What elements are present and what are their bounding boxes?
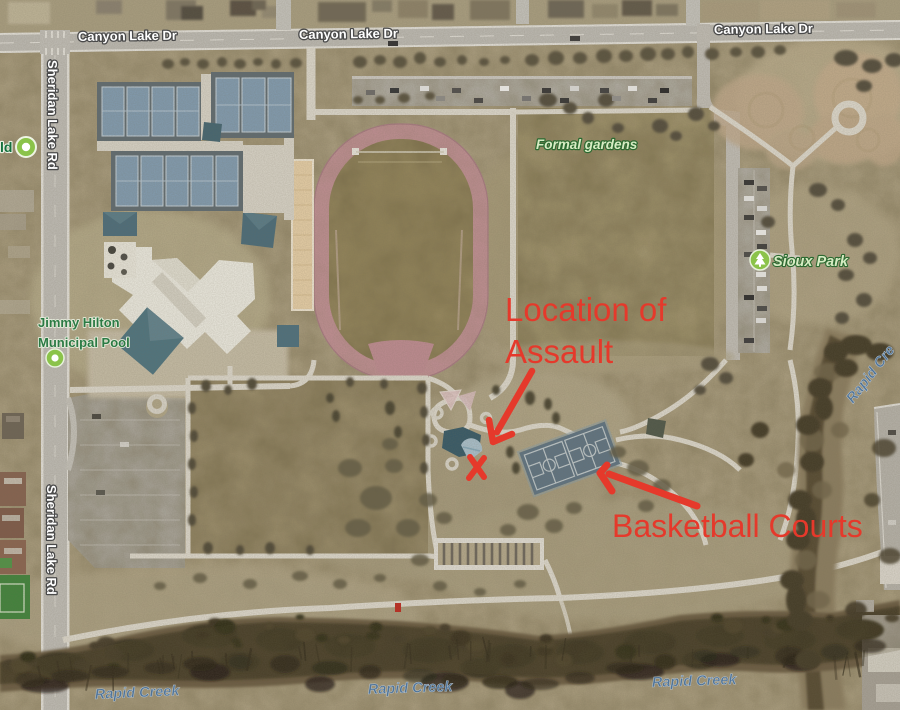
svg-text:Basketball Courts: Basketball Courts: [612, 508, 863, 544]
svg-text:Canyon Lake Dr: Canyon Lake Dr: [78, 28, 177, 44]
svg-text:Location of: Location of: [505, 291, 667, 328]
svg-text:Sheridan Lake Rd: Sheridan Lake Rd: [45, 60, 60, 170]
svg-text:Municipal Pool: Municipal Pool: [38, 335, 130, 350]
svg-text:Jimmy Hilton: Jimmy Hilton: [38, 315, 120, 330]
svg-text:Rapid Creek: Rapid Creek: [368, 679, 454, 698]
svg-text:Assault: Assault: [505, 333, 613, 370]
svg-text:Sheridan Lake Rd: Sheridan Lake Rd: [44, 485, 59, 595]
svg-text:Canyon Lake Dr: Canyon Lake Dr: [299, 26, 398, 42]
svg-text:Canyon Lake Dr: Canyon Lake Dr: [714, 21, 813, 37]
svg-text:Sioux Park: Sioux Park: [773, 254, 849, 270]
svg-text:ld: ld: [0, 139, 12, 155]
svg-text:Rapid Creek: Rapid Creek: [652, 672, 738, 691]
svg-text:Formal gardens: Formal gardens: [536, 137, 638, 152]
